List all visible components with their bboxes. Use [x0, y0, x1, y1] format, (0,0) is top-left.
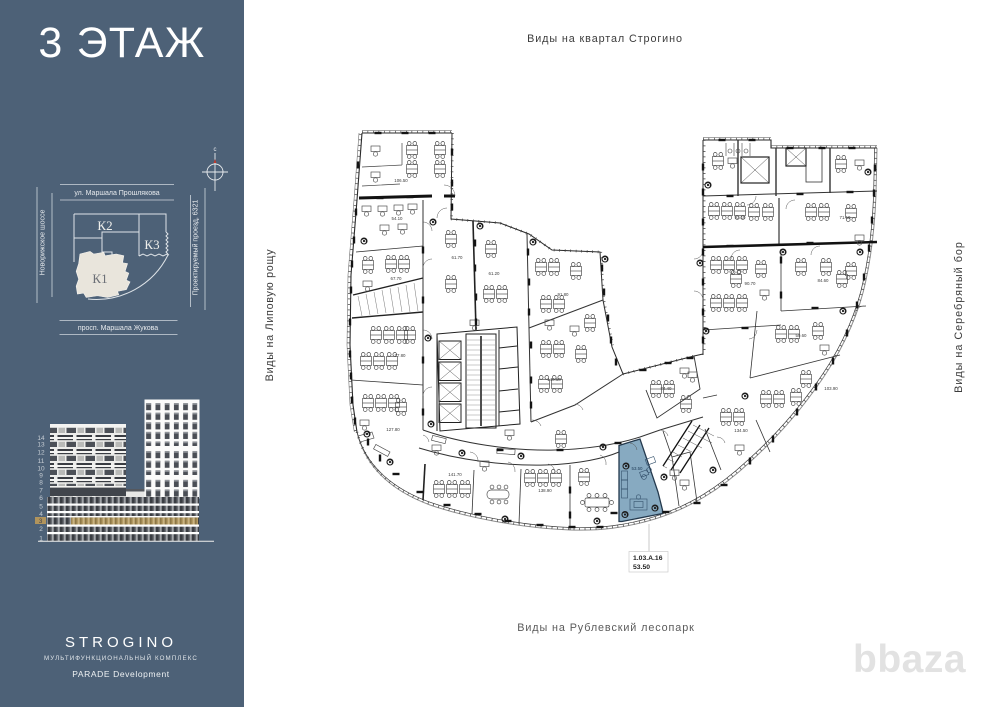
svg-text:8: 8 — [39, 479, 43, 486]
svg-text:134.50: 134.50 — [734, 428, 748, 433]
svg-text:54.10: 54.10 — [392, 216, 404, 221]
svg-text:141.70: 141.70 — [448, 472, 462, 477]
svg-text:PARADE Development: PARADE Development — [72, 669, 170, 679]
svg-text:7: 7 — [39, 487, 43, 494]
svg-text:61.20: 61.20 — [489, 271, 501, 276]
svg-text:91.80: 91.80 — [558, 292, 570, 297]
svg-text:STROGINO: STROGINO — [65, 634, 177, 651]
svg-text:84.40: 84.40 — [661, 386, 673, 391]
svg-text:Виды на Липовую рощу: Виды на Липовую рощу — [264, 249, 276, 382]
svg-text:МУЛЬТИФУНКЦИОНАЛЬНЫЙ КОМПЛЕКС: МУЛЬТИФУНКЦИОНАЛЬНЫЙ КОМПЛЕКС — [44, 654, 198, 662]
svg-text:13: 13 — [37, 441, 45, 448]
svg-text:ул. Маршала Прошлякова: ул. Маршала Прошлякова — [74, 190, 159, 197]
svg-text:Виды на квартал Строгино: Виды на квартал Строгино — [527, 33, 683, 45]
svg-text:К2: К2 — [97, 218, 112, 233]
svg-text:127.80: 127.80 — [386, 427, 400, 432]
svg-text:1: 1 — [39, 536, 43, 543]
svg-text:59.60: 59.60 — [796, 333, 808, 338]
svg-text:53.50: 53.50 — [632, 466, 644, 471]
svg-text:2: 2 — [39, 526, 43, 533]
svg-text:Новорижское шоссе: Новорижское шоссе — [40, 210, 47, 276]
svg-text:12: 12 — [37, 450, 45, 457]
svg-text:с: с — [214, 147, 217, 153]
svg-text:11: 11 — [38, 458, 45, 465]
svg-text:67.70: 67.70 — [391, 276, 403, 281]
svg-text:bbaza: bbaza — [853, 638, 966, 681]
svg-text:140.50: 140.50 — [547, 377, 561, 382]
svg-text:6: 6 — [39, 495, 43, 502]
svg-text:Виды на Серебряный бор: Виды на Серебряный бор — [953, 241, 965, 393]
svg-text:138.90: 138.90 — [538, 488, 552, 493]
svg-text:106.50: 106.50 — [394, 178, 408, 183]
svg-text:53.50: 53.50 — [633, 564, 650, 571]
svg-text:90.70: 90.70 — [745, 281, 757, 286]
svg-text:9: 9 — [39, 472, 43, 479]
svg-text:К3: К3 — [144, 237, 159, 252]
svg-text:5: 5 — [39, 503, 43, 510]
svg-text:3: 3 — [39, 518, 43, 525]
svg-text:61.70: 61.70 — [452, 255, 464, 260]
svg-text:3 ЭТАЖ: 3 ЭТАЖ — [38, 19, 205, 67]
svg-text:1.03.А.16: 1.03.А.16 — [633, 555, 663, 562]
svg-text:93.10: 93.10 — [735, 215, 747, 220]
svg-text:Виды на Рублевский лесопарк: Виды на Рублевский лесопарк — [517, 622, 695, 634]
svg-text:84.60: 84.60 — [818, 278, 830, 283]
svg-text:4: 4 — [39, 511, 43, 518]
svg-text:71.10: 71.10 — [840, 215, 852, 220]
svg-text:Проектируемый проезд, 6321: Проектируемый проезд, 6321 — [192, 200, 200, 296]
svg-text:К1: К1 — [92, 271, 107, 286]
svg-text:77.80: 77.80 — [395, 353, 407, 358]
svg-text:103.90: 103.90 — [824, 386, 838, 391]
svg-text:просп. Маршала Жукова: просп. Маршала Жукова — [78, 325, 158, 332]
